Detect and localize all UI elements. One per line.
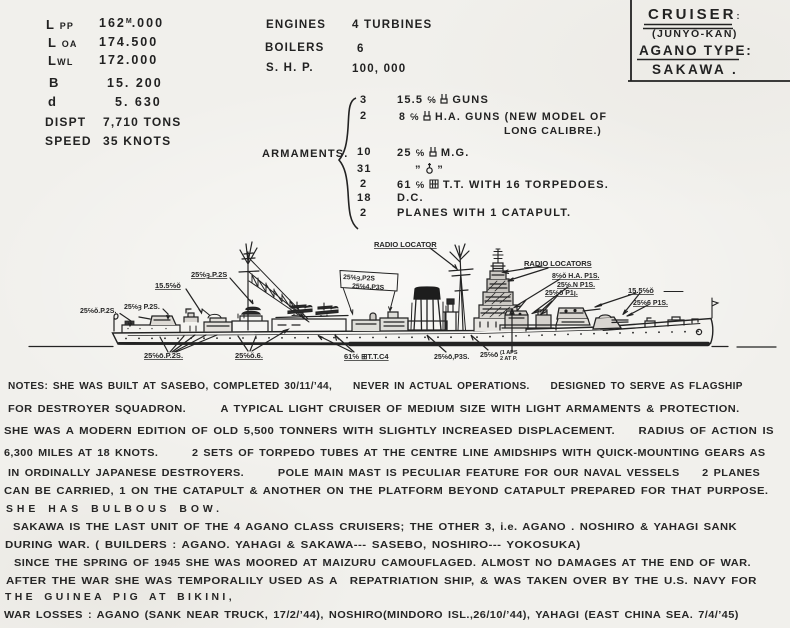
svg-text:61℅ ⊞T.T.C4: 61℅ ⊞T.T.C4 xyxy=(344,352,389,361)
svg-text:25℅4,P3S: 25℅4,P3S xyxy=(352,283,385,292)
svg-text:15.5℅ŏ: 15.5℅ŏ xyxy=(628,286,654,295)
svg-text:RADIO LOCATORS: RADIO LOCATORS xyxy=(524,259,592,268)
svg-text:25℅ō: 25℅ō xyxy=(480,352,498,359)
svg-text:2 AT P.: 2 AT P. xyxy=(500,356,518,362)
svg-text:25℅ō,P3S.: 25℅ō,P3S. xyxy=(434,354,469,361)
svg-text:15.5℅ŏ: 15.5℅ŏ xyxy=(155,281,181,290)
svg-text:25℅ō.P.2S.: 25℅ō.P.2S. xyxy=(144,351,183,360)
svg-text:25℅6 P1S.: 25℅6 P1S. xyxy=(633,300,668,307)
svg-text:8℅ŏ H.A. P1S.: 8℅ŏ H.A. P1S. xyxy=(552,273,599,280)
svg-text:25℅ȝ P.2S.: 25℅ȝ P.2S. xyxy=(124,304,160,311)
svg-text:25℅ō P1ן.: 25℅ō P1ן. xyxy=(545,290,578,297)
svg-text:25℅.N P1S.: 25℅.N P1S. xyxy=(557,282,595,289)
svg-text:RADIO LOCATOR: RADIO LOCATOR xyxy=(374,240,437,249)
svg-text:25℅ŏ.6.: 25℅ŏ.6. xyxy=(235,351,263,360)
svg-text:25℅ŏ.P.2S.: 25℅ŏ.P.2S. xyxy=(80,308,116,315)
svg-text:25℅ȝ.P.2S: 25℅ȝ.P.2S xyxy=(191,270,227,279)
svg-text:25℅ȝ,P2S: 25℅ȝ,P2S xyxy=(343,274,376,283)
